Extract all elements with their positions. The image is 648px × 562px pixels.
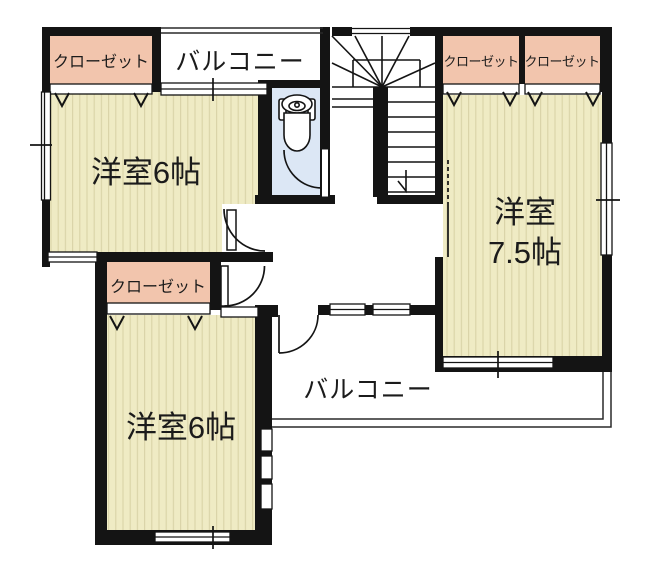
room1-west-window <box>42 92 51 200</box>
room3-east-window-1 <box>261 429 272 451</box>
closet-top-right-2-opening <box>525 84 600 94</box>
closet-middle-label: クローゼット <box>110 278 206 296</box>
closet-top-right-2-label: クローゼット <box>524 54 599 69</box>
balcony-door-swing-arc <box>279 315 318 353</box>
closet-middle-opening <box>107 303 210 314</box>
closet-top-right-1-opening <box>443 84 519 94</box>
western-room-1-label: 洋室6帖 <box>91 155 201 190</box>
western-room-2-label-line2: 7.5帖 <box>488 235 562 270</box>
balcony-top-label: バルコニー <box>175 48 305 76</box>
stair-direction-arrow <box>398 170 406 191</box>
western-room-2-label-line1: 洋室 <box>494 195 556 230</box>
stairs-entry-jamb <box>322 149 329 197</box>
room3-door-swing-arc <box>225 266 265 306</box>
closet-top-left-label: クローゼット <box>53 53 149 71</box>
room3-entry-opening <box>221 307 258 317</box>
room3-east-window-2 <box>261 456 272 479</box>
balcony-bottom-label: バルコニー <box>303 376 433 404</box>
floor-plan: クローゼット バルコニー 洋室6帖 クローゼット クローゼット 洋室 7.5帖 … <box>0 0 648 562</box>
closet-top-right-1-label: クローゼット <box>443 54 518 69</box>
western-room-3-label: 洋室6帖 <box>126 410 236 445</box>
balcony-top-outline <box>161 28 323 33</box>
closet-top-left-opening <box>50 84 152 94</box>
room3-door-leaf <box>221 266 228 306</box>
room1-door-leaf <box>227 210 236 250</box>
room3-east-window-3 <box>261 484 272 509</box>
